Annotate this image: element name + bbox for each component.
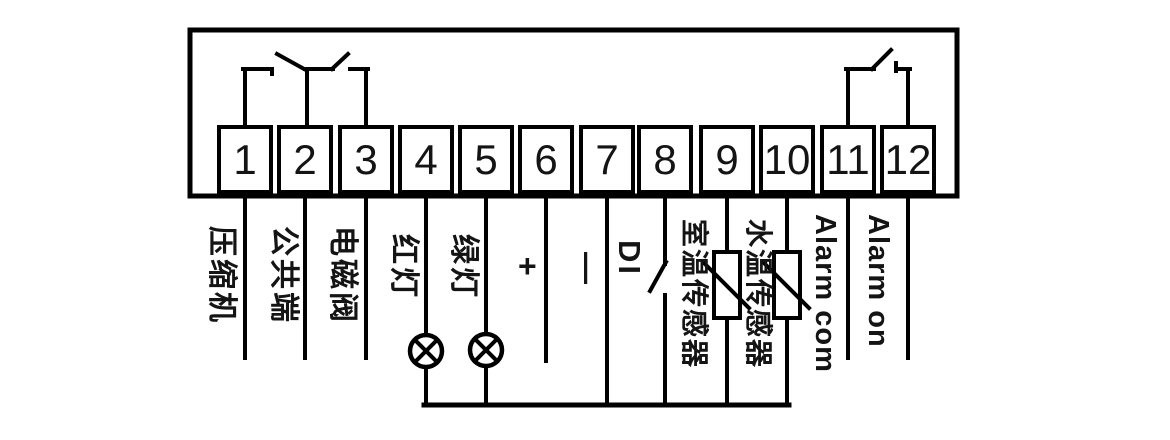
di-switch-arm [650, 262, 666, 291]
terminal-box-12: 12 [880, 125, 936, 194]
terminal-number: 3 [354, 136, 377, 184]
red-lamp-icon [410, 335, 442, 367]
terminal-10-label: 水温传感器 [744, 219, 772, 369]
terminal-box-11: 11 [820, 125, 876, 194]
terminal-box-3: 3 [338, 125, 394, 194]
terminal-box-2: 2 [277, 125, 333, 194]
terminal-7-label: — [572, 252, 604, 284]
relay-contact-right [846, 50, 910, 127]
terminal-number: 1 [233, 136, 256, 184]
terminal-box-7: 7 [579, 125, 635, 194]
relay-contact-left [243, 54, 368, 127]
terminal-box-10: 10 [759, 125, 815, 194]
terminal-number: 8 [653, 136, 676, 184]
terminal-3-label: 电磁阀 [327, 226, 357, 325]
terminal-box-6: 6 [518, 125, 574, 194]
green-lamp-icon [470, 334, 502, 366]
terminal-number: 7 [595, 136, 618, 184]
terminal-5-label: 绿灯 [448, 234, 478, 300]
terminal-number: 2 [293, 136, 316, 184]
terminal-1-label: 压缩机 [206, 226, 236, 325]
terminal-box-4: 4 [398, 125, 454, 194]
terminal-6-label: + [518, 250, 537, 282]
terminal-12-label: Alarm on [863, 214, 892, 348]
terminal-box-1: 1 [217, 125, 273, 194]
diagram-linework [0, 0, 1170, 440]
terminal-number: 12 [885, 136, 932, 184]
terminal-box-9: 9 [699, 125, 755, 194]
wiring-diagram: 1 2 3 4 5 6 7 8 9 10 11 12 压缩机 公共端 电磁阀 红… [0, 0, 1170, 440]
terminal-number: 6 [534, 136, 557, 184]
terminal-9-label: 室温传感器 [680, 219, 708, 369]
terminal-number: 5 [474, 136, 497, 184]
terminal-box-5: 5 [458, 125, 514, 194]
terminal-2-label: 公共端 [268, 226, 298, 325]
terminal-8-label: DI [614, 240, 645, 277]
terminal-box-8: 8 [637, 125, 693, 194]
terminal-number: 11 [826, 136, 870, 184]
terminal-4-label: 红灯 [388, 234, 418, 300]
terminal-number: 10 [764, 136, 811, 184]
terminal-number: 4 [414, 136, 437, 184]
terminal-number: 9 [715, 136, 738, 184]
terminal-11-label: Alarm com [810, 214, 839, 373]
